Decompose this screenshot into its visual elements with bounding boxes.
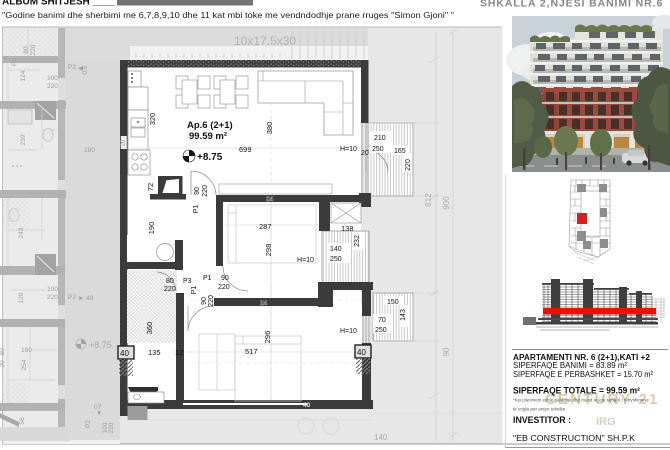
svg-text:250: 250 [330, 256, 342, 263]
svg-text:72: 72 [146, 183, 155, 191]
svg-text:SIPERFAQE TOTALE = 99.59 m²: SIPERFAQE TOTALE = 99.59 m² [513, 386, 640, 396]
svg-text:P1: P1 [191, 286, 198, 295]
svg-text:135: 135 [148, 348, 161, 357]
svg-text:24: 24 [260, 300, 268, 307]
svg-text:"Godine banimi dhe sherbimi me: "Godine banimi dhe sherbimi me 6,7,8,9,1… [2, 10, 454, 20]
svg-text:P3: P3 [183, 278, 192, 285]
svg-text:250: 250 [375, 327, 387, 334]
svg-text:48: 48 [86, 295, 94, 302]
svg-text:220: 220 [208, 295, 215, 307]
svg-text:Ap.6 (2+1): Ap.6 (2+1) [187, 120, 233, 131]
svg-text:699: 699 [239, 145, 252, 154]
svg-text:26: 26 [121, 139, 127, 146]
svg-text:SHKALLA 2,NJESI BANIMI NR.6: SHKALLA 2,NJESI BANIMI NR.6 [480, 0, 663, 10]
svg-text:90: 90 [194, 187, 201, 195]
svg-text:H=10: H=10 [340, 146, 357, 153]
svg-text:24: 24 [266, 196, 274, 203]
svg-text:220: 220 [47, 83, 58, 90]
svg-text:90: 90 [221, 275, 229, 282]
svg-text:900: 900 [442, 196, 451, 210]
svg-text:124: 124 [20, 70, 27, 81]
svg-text:ALBUM SHITJESH ____: ALBUM SHITJESH ____ [2, 0, 115, 8]
svg-text:P2: P2 [68, 294, 76, 301]
svg-text:80: 80 [166, 278, 174, 285]
svg-text:12: 12 [175, 348, 183, 357]
svg-text:138: 138 [341, 224, 354, 233]
svg-text:296: 296 [263, 331, 272, 344]
svg-text:H=10: H=10 [297, 257, 314, 264]
svg-text:P2: P2 [85, 420, 92, 428]
svg-text:56: 56 [19, 417, 26, 425]
svg-text:90: 90 [442, 347, 451, 356]
svg-text:P2: P2 [68, 64, 76, 71]
svg-text:70: 70 [378, 317, 386, 324]
svg-text:220: 220 [164, 286, 176, 293]
svg-text:220: 220 [202, 185, 209, 197]
svg-text:250: 250 [372, 146, 384, 153]
svg-text:239: 239 [20, 134, 27, 145]
svg-text:220: 220 [47, 294, 58, 301]
svg-text:P1: P1 [193, 205, 200, 214]
svg-text:220: 220 [405, 159, 412, 171]
svg-text:te vogla per arsye teknike: te vogla per arsye teknike [513, 407, 566, 412]
svg-text:517: 517 [245, 347, 258, 356]
svg-text:IRG: IRG [596, 416, 616, 428]
svg-text:90: 90 [201, 297, 208, 305]
svg-text:"EB CONSTRUCTION" SH.P.K: "EB CONSTRUCTION" SH.P.K [513, 433, 635, 443]
svg-text:210: 210 [374, 135, 386, 142]
svg-text:+8.75: +8.75 [89, 340, 112, 350]
svg-text:*Kjo planimetri eshte paraqitj: *Kjo planimetri eshte paraqitje dhe mund… [513, 398, 649, 403]
svg-text:20: 20 [361, 150, 369, 157]
svg-text:287: 287 [259, 222, 272, 231]
svg-text:190: 190 [147, 222, 156, 235]
svg-text:40: 40 [357, 348, 366, 357]
svg-text:20: 20 [0, 360, 6, 368]
svg-text:▼: ▼ [96, 410, 102, 417]
svg-text:99.59 m²: 99.59 m² [189, 131, 227, 142]
svg-text:INVESTITOR :: INVESTITOR : [513, 415, 571, 425]
svg-text:254: 254 [21, 359, 28, 370]
svg-text:160: 160 [21, 347, 32, 354]
svg-text:143: 143 [400, 309, 407, 321]
svg-text:H=10: H=10 [340, 328, 357, 335]
svg-text:360: 360 [145, 322, 154, 335]
svg-text:165: 165 [394, 148, 406, 155]
svg-text:232: 232 [354, 235, 361, 247]
svg-text:320: 320 [148, 113, 157, 126]
svg-text:243: 243 [18, 227, 25, 238]
svg-text:40: 40 [120, 349, 129, 358]
svg-text:220: 220 [30, 44, 37, 55]
svg-text:P1: P1 [203, 275, 212, 282]
svg-text:812: 812 [424, 193, 433, 207]
svg-text:140: 140 [330, 246, 342, 253]
svg-text:140: 140 [374, 433, 388, 442]
svg-text:P3: P3 [11, 58, 18, 66]
svg-text:120: 120 [18, 292, 25, 303]
svg-text:100: 100 [47, 75, 58, 82]
svg-text:220: 220 [218, 284, 230, 291]
svg-text:160: 160 [84, 147, 95, 154]
svg-text:220: 220 [108, 422, 115, 433]
svg-text:+8.75: +8.75 [197, 152, 223, 163]
svg-text:100: 100 [47, 286, 58, 293]
svg-text:40: 40 [303, 402, 311, 409]
svg-text:SIPERFAQE E PERBASHKET = 15.70: SIPERFAQE E PERBASHKET = 15.70 m² [513, 369, 653, 379]
svg-text:380: 380 [265, 122, 274, 135]
svg-text:298: 298 [264, 244, 273, 257]
svg-text:80: 80 [23, 46, 30, 54]
svg-text:10x17.5x30: 10x17.5x30 [234, 34, 296, 48]
svg-text:150: 150 [387, 299, 399, 306]
svg-text:►: ► [78, 295, 84, 302]
svg-text:0.9: 0.9 [82, 65, 89, 74]
svg-text:80: 80 [0, 348, 6, 356]
